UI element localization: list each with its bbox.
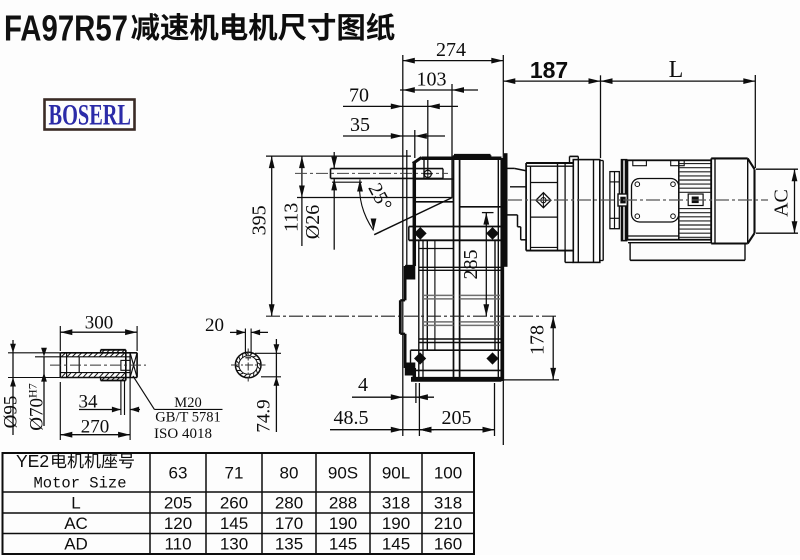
svg-text:285: 285	[460, 250, 482, 280]
svg-text:187: 187	[530, 57, 568, 83]
svg-text:35: 35	[350, 114, 370, 136]
svg-text:205: 205	[164, 494, 192, 513]
svg-text:48.5: 48.5	[334, 407, 369, 429]
svg-text:AC: AC	[64, 514, 88, 533]
svg-text:274: 274	[436, 39, 466, 61]
svg-text:BOSERL: BOSERL	[49, 100, 132, 132]
svg-text:Ø26: Ø26	[302, 205, 324, 239]
svg-text:190: 190	[382, 514, 410, 533]
svg-text:110: 110	[164, 535, 191, 554]
svg-text:20: 20	[205, 315, 224, 336]
svg-text:270: 270	[81, 417, 110, 438]
svg-text:71: 71	[225, 464, 244, 483]
svg-text:L: L	[71, 494, 80, 513]
svg-text:70: 70	[349, 85, 369, 107]
svg-text:260: 260	[220, 494, 248, 513]
svg-text:145: 145	[329, 535, 357, 554]
svg-text:145: 145	[220, 514, 248, 533]
svg-text:Motor Size: Motor Size	[33, 475, 126, 493]
svg-text:90L: 90L	[382, 464, 410, 483]
svg-text:210: 210	[434, 514, 462, 533]
svg-text:Ø95: Ø95	[1, 396, 22, 429]
svg-text:63: 63	[169, 464, 188, 483]
svg-text:L: L	[669, 57, 684, 83]
svg-text:120: 120	[164, 514, 192, 533]
svg-text:100: 100	[434, 464, 462, 483]
svg-text:135: 135	[275, 535, 303, 554]
svg-text:300: 300	[85, 313, 114, 334]
svg-text:280: 280	[275, 494, 303, 513]
svg-text:AC: AC	[771, 189, 793, 217]
svg-text:318: 318	[382, 494, 410, 513]
svg-text:74.9: 74.9	[254, 399, 275, 432]
svg-text:113: 113	[281, 203, 303, 232]
svg-text:GB/T 5781: GB/T 5781	[155, 410, 220, 426]
svg-text:80: 80	[280, 464, 299, 483]
svg-text:145: 145	[382, 535, 410, 554]
svg-text:34: 34	[79, 392, 99, 413]
svg-text:90S: 90S	[328, 464, 358, 483]
svg-text:FA97R57: FA97R57	[4, 8, 128, 49]
svg-text:190: 190	[329, 514, 357, 533]
svg-text:170: 170	[275, 514, 303, 533]
svg-text:288: 288	[329, 494, 357, 513]
svg-text:AD: AD	[64, 535, 88, 554]
svg-text:178: 178	[527, 325, 549, 355]
svg-text:318: 318	[434, 494, 462, 513]
svg-text:395: 395	[249, 205, 271, 235]
svg-text:YE2: YE2	[16, 451, 49, 471]
svg-text:160: 160	[434, 535, 462, 554]
svg-text:ISO 4018: ISO 4018	[154, 426, 212, 442]
svg-text:103: 103	[417, 69, 447, 91]
svg-text:205: 205	[442, 407, 472, 429]
svg-text:4: 4	[358, 374, 368, 396]
svg-text:130: 130	[220, 535, 248, 554]
